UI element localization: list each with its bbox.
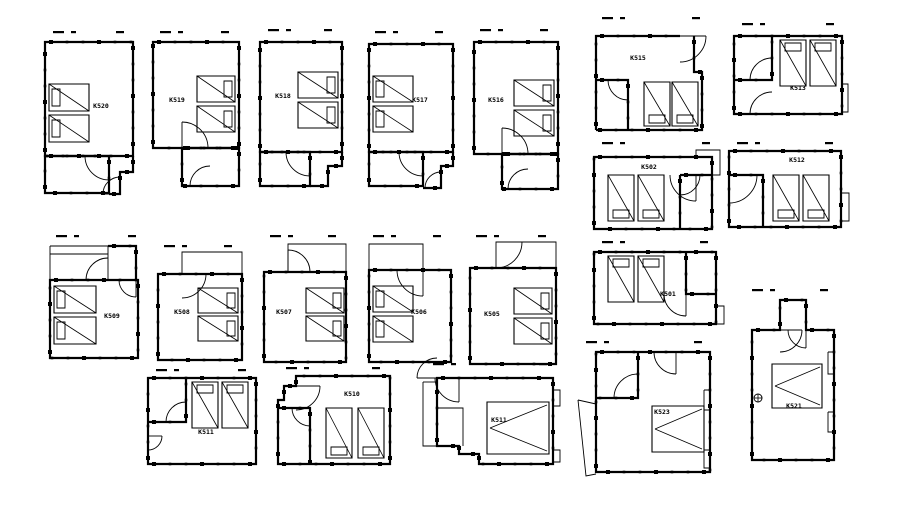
room-plan-drawing: [150, 36, 243, 194]
room-plan-drawing: [592, 246, 722, 330]
room-plan-k501: K501: [592, 246, 722, 330]
floor-plan-sheet: K520K519K518K517K516K515K513K502K512K509…: [0, 0, 903, 530]
room-label: K502: [641, 164, 657, 171]
room-label: K523: [654, 409, 670, 416]
room-plan-drawing: [363, 240, 455, 368]
room-plan-k523: K523: [576, 346, 716, 480]
room-plan-k507: K507: [260, 240, 350, 368]
room-plan-drawing: [576, 346, 716, 480]
room-plan-k512: K512: [727, 147, 847, 235]
room-plan-drawing: [258, 34, 346, 194]
room-label: K518: [275, 93, 291, 100]
room-plan-k520: K520: [43, 36, 138, 199]
room-plan-k513: K513: [732, 28, 848, 120]
room-label: K517: [412, 97, 428, 104]
room-plan-k521: K521: [742, 294, 842, 466]
room-plan-k505: K505: [466, 240, 560, 370]
room-plan-k511: K511: [146, 374, 260, 470]
room-plan-drawing: [154, 250, 246, 364]
room-plan-k502: K502: [592, 147, 724, 235]
room-label: K512: [789, 157, 805, 164]
room-label: K507: [276, 309, 292, 316]
room-label: K520: [93, 103, 109, 110]
room-label: K510: [344, 391, 360, 398]
room-label: K515: [630, 55, 646, 62]
room-plan-drawing: [732, 28, 848, 120]
room-plan-k508: K508: [154, 250, 246, 364]
room-plan-drawing: [592, 22, 714, 134]
room-plan-drawing: [470, 34, 562, 197]
room-plan-k517: K517: [365, 36, 457, 196]
room-label: K521: [786, 403, 802, 410]
room-label: K505: [484, 311, 500, 318]
room-plan-k516: K516: [470, 34, 562, 197]
room-label: K511: [491, 417, 507, 424]
room-label: K506: [411, 309, 427, 316]
room-plan-drawing: [742, 294, 842, 466]
room-plan-k510: K510: [276, 372, 394, 468]
room-plan-k509: K509: [46, 240, 150, 364]
room-label: K501: [660, 291, 676, 298]
room-plan-drawing: [365, 36, 457, 196]
room-label: K513: [790, 85, 806, 92]
room-plan-k515: K515: [592, 22, 714, 134]
room-plan-k506: K506: [363, 240, 455, 368]
room-plan-drawing: [146, 374, 260, 470]
room-plan-k511: K511: [423, 368, 561, 472]
room-plan-drawing: [276, 372, 394, 468]
room-plan-k519: K519: [150, 36, 243, 194]
room-plan-drawing: [43, 36, 138, 199]
room-plan-drawing: [46, 240, 150, 364]
room-label: K516: [488, 97, 504, 104]
room-plan-drawing: [592, 147, 724, 235]
room-plan-drawing: [466, 240, 560, 370]
room-label: K511: [198, 429, 214, 436]
room-label: K508: [174, 309, 190, 316]
room-plan-drawing: [727, 147, 847, 235]
room-plan-drawing: [260, 240, 350, 368]
room-plan-k518: K518: [258, 34, 346, 194]
room-label: K519: [169, 97, 185, 104]
room-label: K509: [104, 313, 120, 320]
